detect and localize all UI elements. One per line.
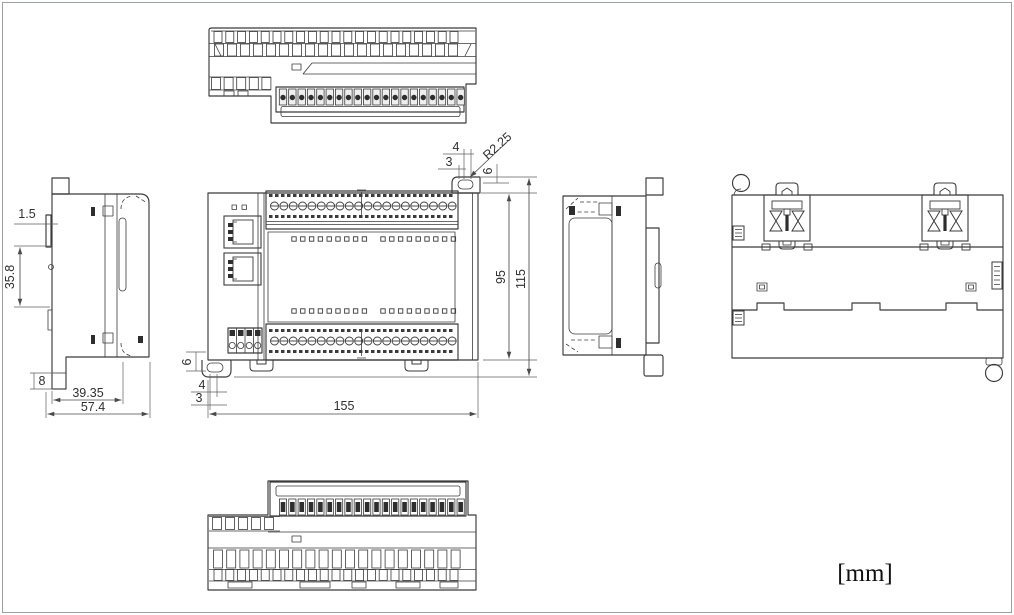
top-vent-row-2 <box>215 44 458 56</box>
din-rail-clip-right <box>920 183 970 250</box>
led-row-2b <box>381 309 456 313</box>
top-terminal-row <box>279 89 464 105</box>
plc-dimension-drawing: 1.5 35.8 8 39.35 <box>0 0 1014 615</box>
dim-label-bottom-6: 6 <box>180 358 194 365</box>
dim-total-width: 155 <box>208 362 478 418</box>
dim-label-1-5: 1.5 <box>18 207 35 221</box>
dim-rail-depth: 39.35 <box>52 362 123 404</box>
mounting-ear-top-slot <box>458 180 473 189</box>
mounting-ear-bottom <box>202 360 231 377</box>
bottom-view <box>208 481 476 590</box>
unit-label: [mm] <box>837 560 893 587</box>
led-row-1b <box>381 237 456 241</box>
dim-label-r2-25: R2.25 <box>480 130 514 163</box>
front-view <box>202 177 480 377</box>
bottom-vent-row-2 <box>214 570 458 581</box>
dim-ear-height-top: 6 <box>481 164 509 183</box>
dimension-annotations: 1.5 35.8 8 39.35 <box>3 130 537 418</box>
dim-label-35-8: 35.8 <box>3 265 17 289</box>
ethernet-port-1 <box>224 216 261 248</box>
bottom-left-vent-row <box>213 518 274 530</box>
dim-label-top-4: 4 <box>453 140 460 154</box>
dim-label-8: 8 <box>39 374 46 388</box>
led-row-1a <box>292 237 367 241</box>
bottom-vent-row-1 <box>214 550 461 568</box>
dim-ear-bottom-offsets: 4 3 <box>191 374 227 410</box>
dim-total-height: 115 <box>234 177 537 377</box>
rear-connector-right <box>992 262 1002 289</box>
dim-foot: 8 <box>30 373 65 389</box>
dim-label-155: 155 <box>334 399 355 413</box>
dim-label-bottom-4: 4 <box>199 378 206 392</box>
dim-label-top-6: 6 <box>481 167 495 174</box>
status-led-a <box>232 205 237 210</box>
technical-drawing-canvas: 1.5 35.8 8 39.35 <box>0 0 1014 615</box>
rear-view <box>732 175 1003 382</box>
dim-mount-span: 35.8 <box>3 246 52 307</box>
rear-corner-boss-bottom <box>986 365 1003 382</box>
din-rail-clip-left <box>762 183 812 250</box>
dim-label-57-4: 57.4 <box>81 400 105 414</box>
top-view <box>209 28 476 123</box>
mounting-ear-bottom-slot <box>207 363 223 372</box>
dim-label-95: 95 <box>494 270 508 284</box>
dim-label-top-3: 3 <box>446 155 453 169</box>
left-side-view <box>46 178 149 389</box>
power-terminal <box>228 328 262 353</box>
ethernet-port-2 <box>224 253 261 285</box>
status-led-b <box>242 205 247 210</box>
expansion-cover <box>569 218 612 334</box>
top-vent-row-1 <box>214 32 458 43</box>
terminal-screws-top <box>271 202 457 210</box>
dim-label-115: 115 <box>514 269 528 289</box>
dim-label-39-35: 39.35 <box>72 386 103 400</box>
rear-connector-bottom-left <box>733 311 744 325</box>
led-row-2a <box>292 309 367 313</box>
right-side-view <box>563 178 663 376</box>
top-left-vent-row <box>212 78 271 90</box>
din-notch-left <box>250 360 273 371</box>
rear-connector-top-left <box>733 226 744 240</box>
dim-label-bottom-3: 3 <box>196 391 203 405</box>
terminal-screws-bottom <box>271 337 457 345</box>
bottom-terminal-row <box>279 499 464 515</box>
din-notch-right <box>405 360 428 371</box>
dim-ear-top-offsets: 4 3 <box>438 140 474 179</box>
